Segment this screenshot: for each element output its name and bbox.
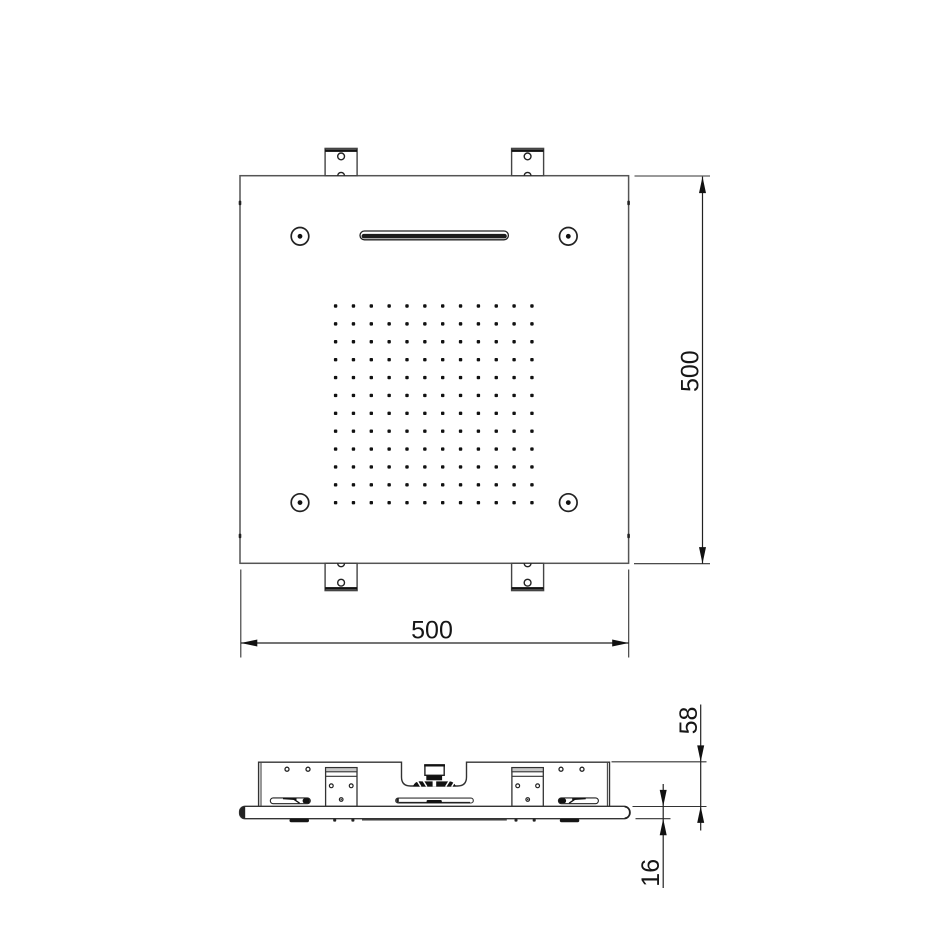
svg-text:500: 500 (411, 616, 453, 644)
svg-text:500: 500 (676, 350, 704, 392)
svg-text:58: 58 (675, 707, 703, 735)
svg-text:16: 16 (637, 859, 665, 887)
